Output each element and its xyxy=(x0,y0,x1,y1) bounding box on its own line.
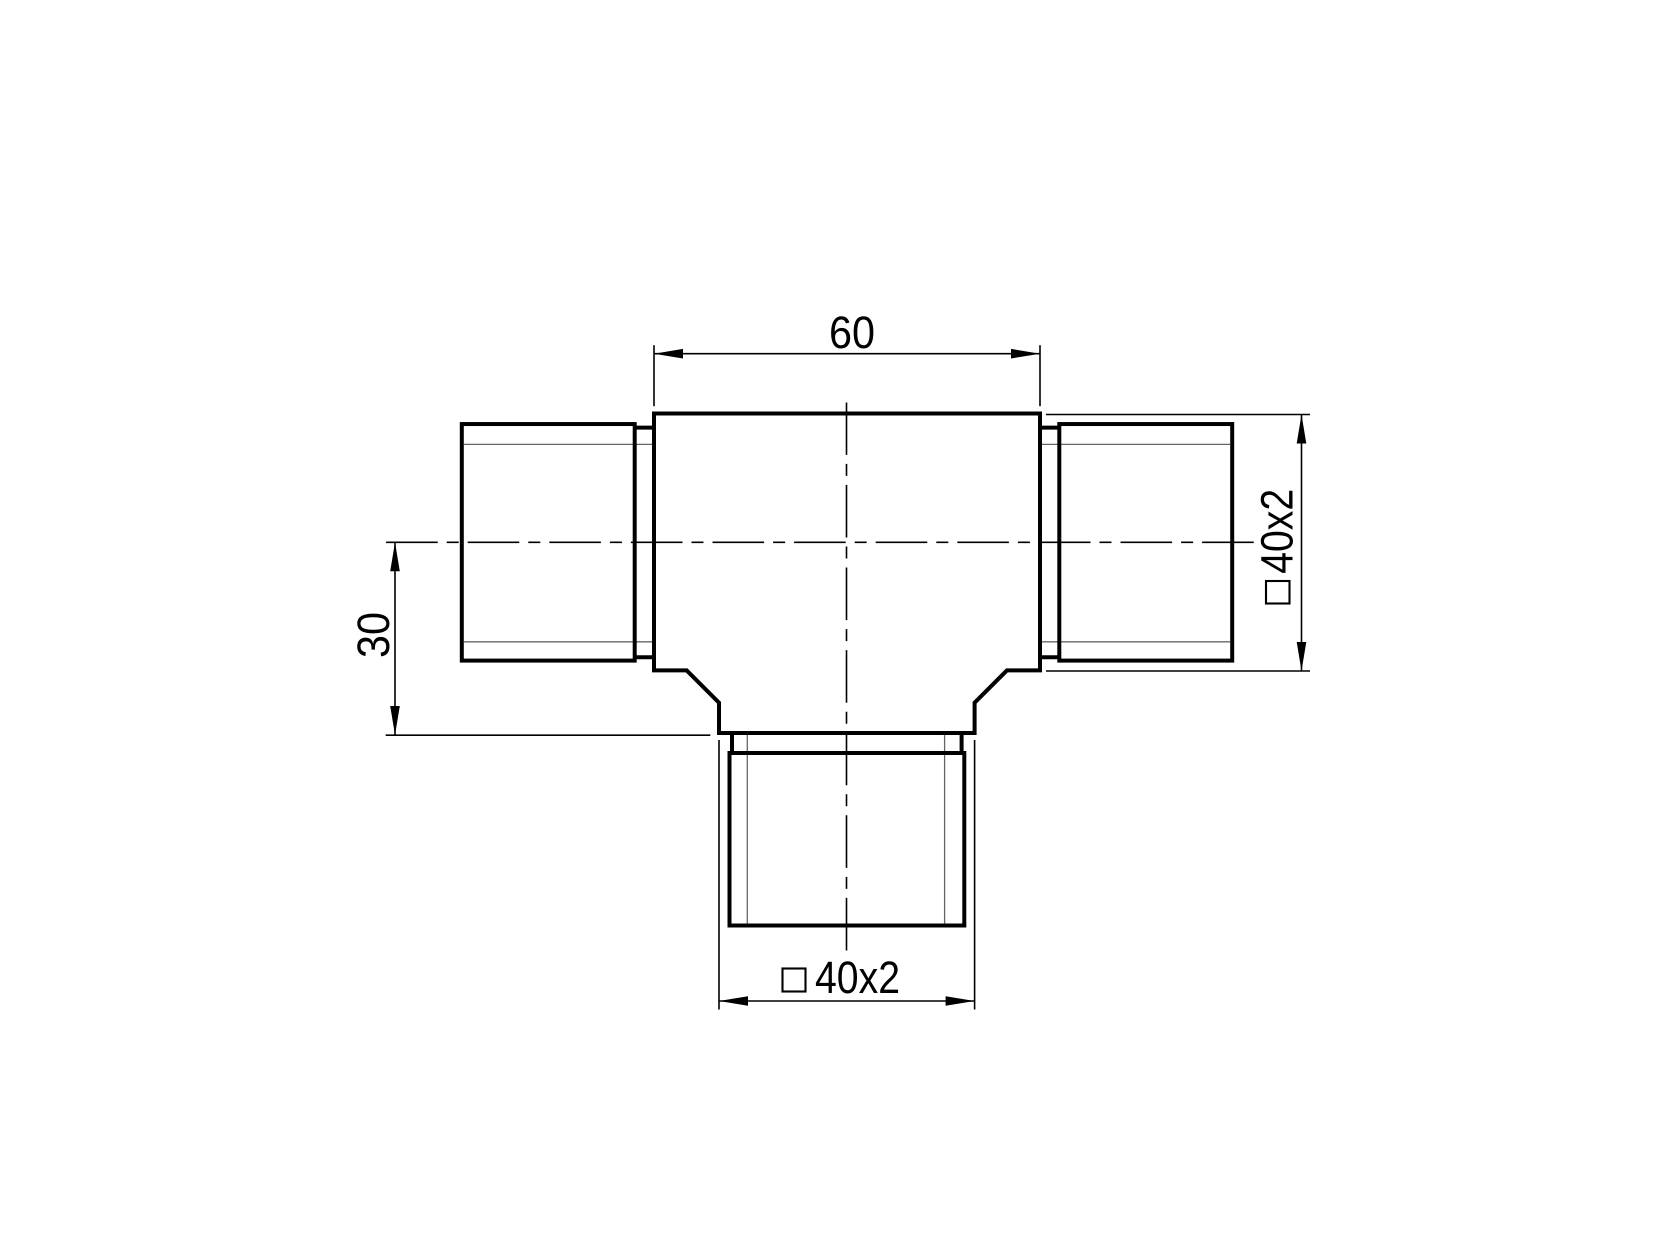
svg-text:40x2: 40x2 xyxy=(815,952,900,1003)
svg-text:60: 60 xyxy=(829,307,875,358)
svg-text:40x2: 40x2 xyxy=(1251,489,1302,574)
svg-text:30: 30 xyxy=(348,612,399,658)
